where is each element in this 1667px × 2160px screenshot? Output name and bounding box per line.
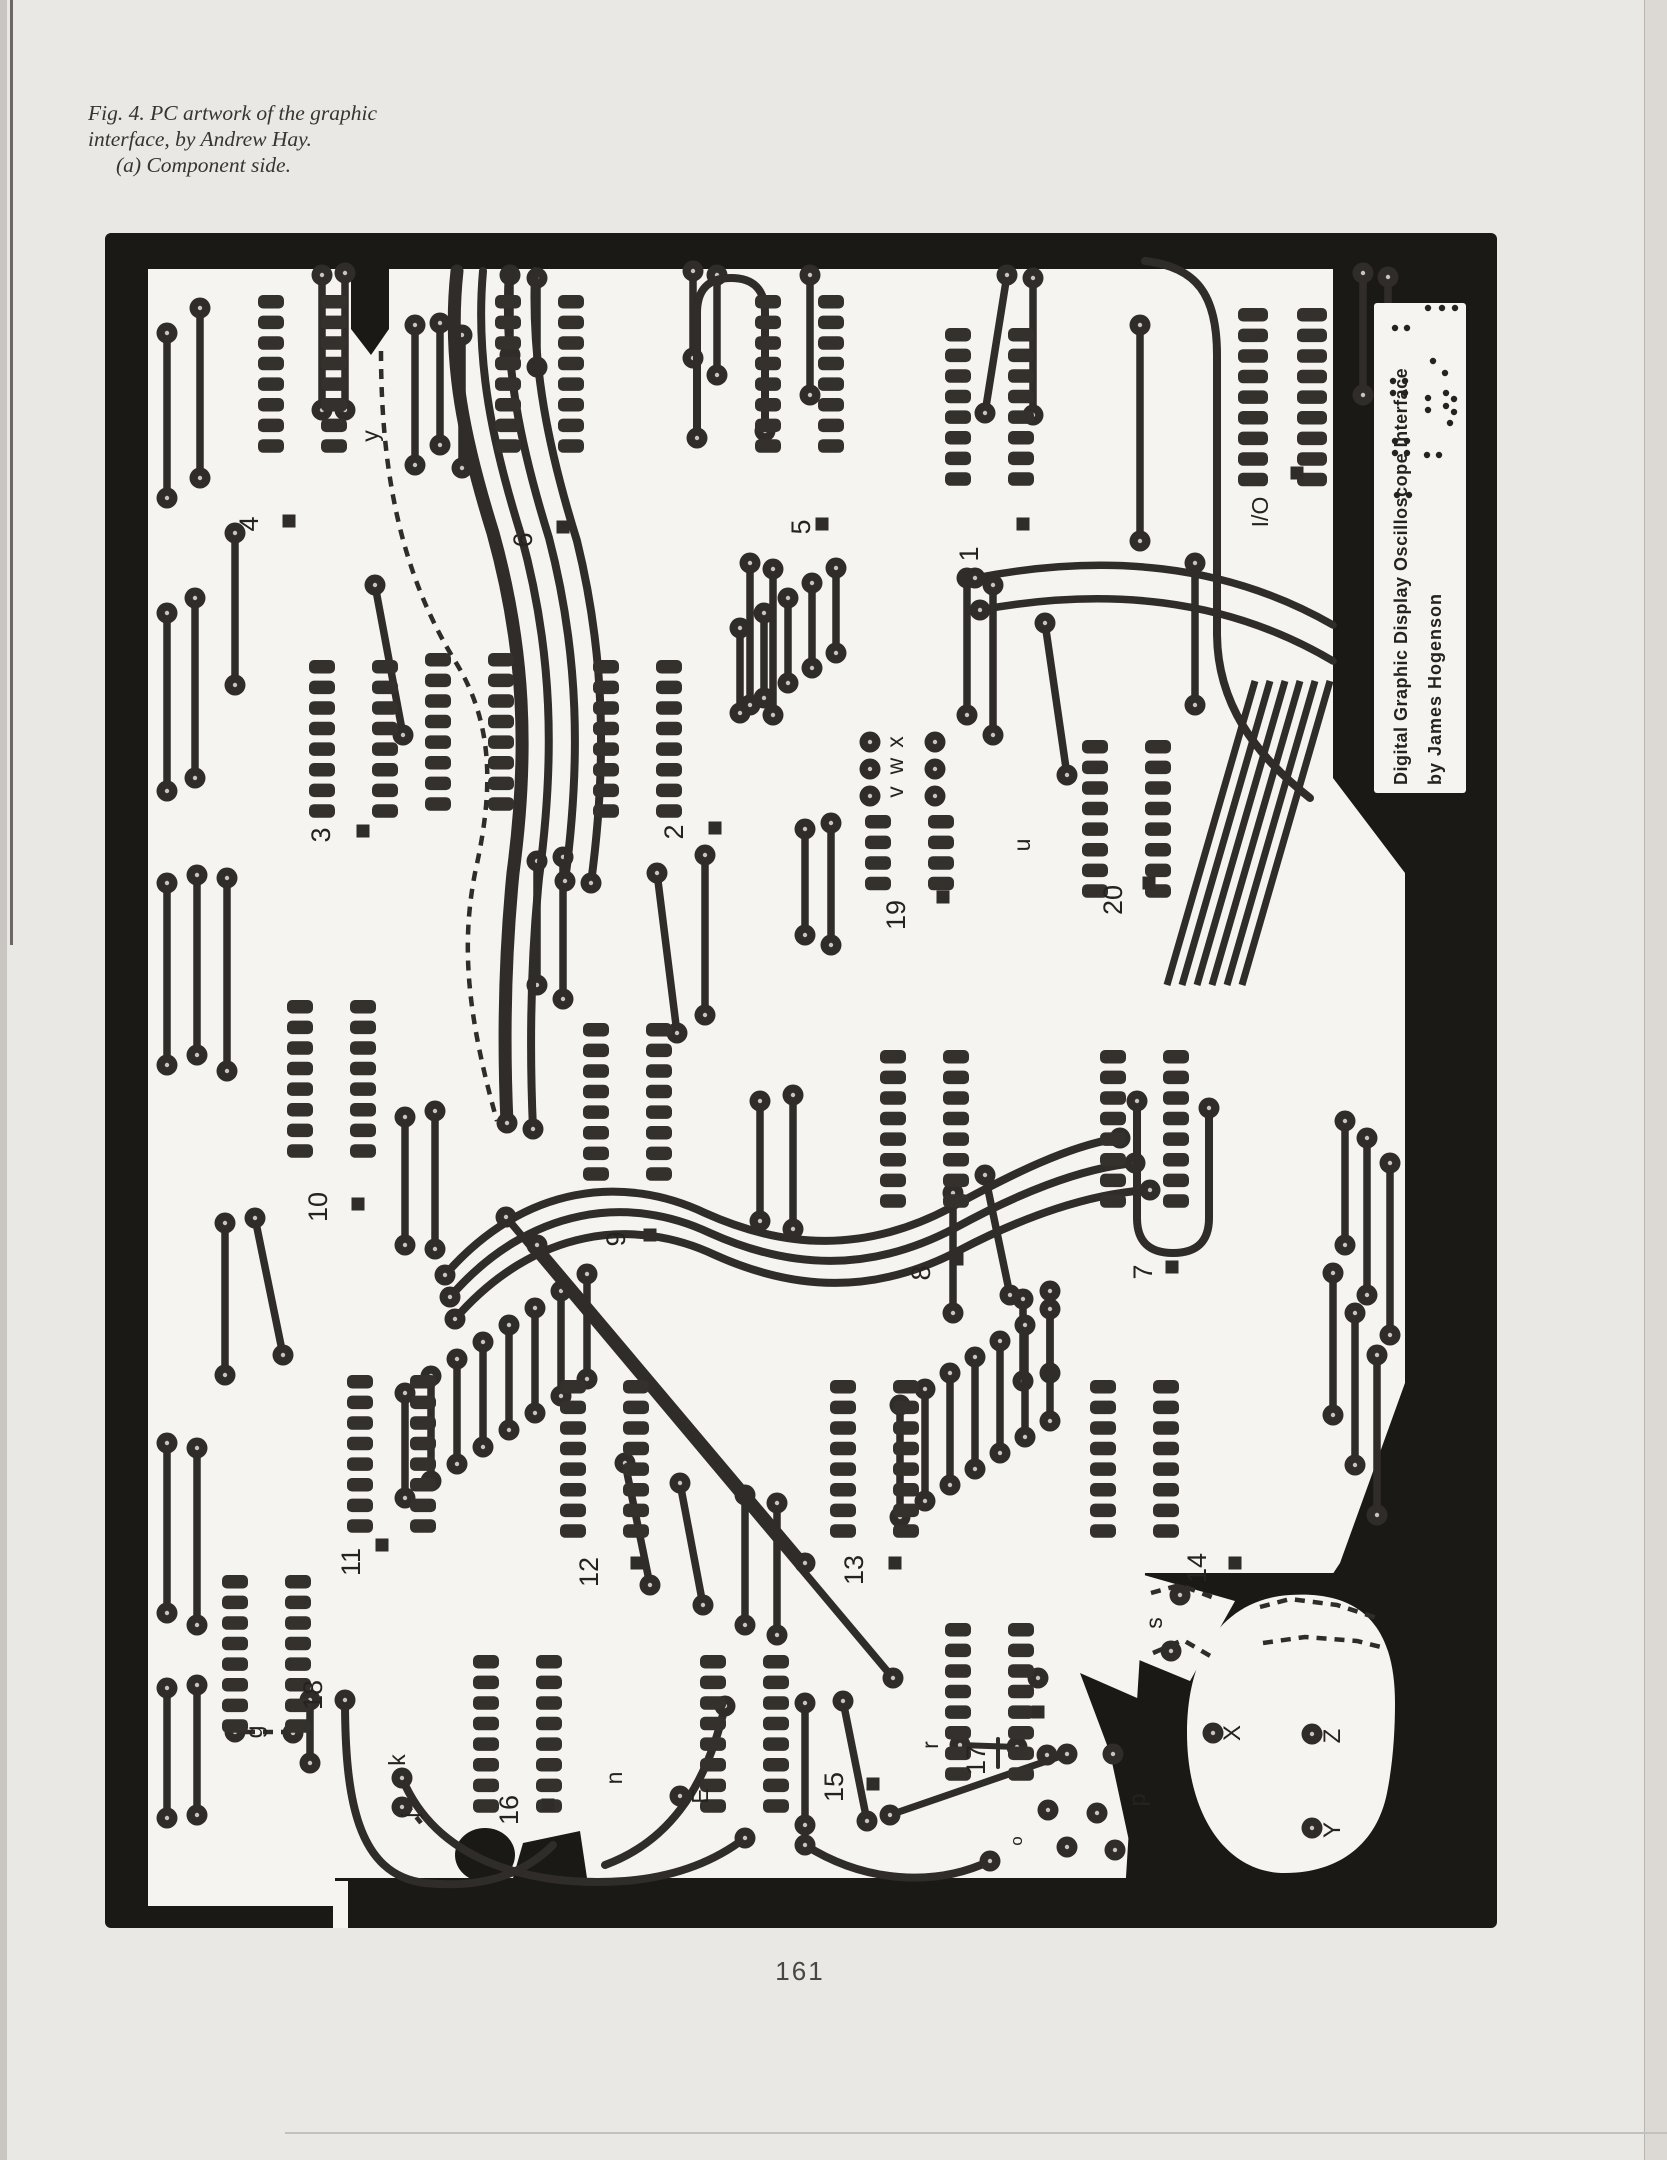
ic-pad <box>425 797 451 811</box>
ic-pad <box>1090 1421 1116 1435</box>
ic-pad <box>495 295 521 309</box>
ic-pad <box>1297 411 1327 425</box>
ic-pad <box>287 1062 313 1076</box>
pad-drill-mark <box>193 596 197 600</box>
pad-drill-mark <box>1065 1752 1069 1756</box>
board-label-4: 4 <box>234 516 264 531</box>
ic-pad <box>1297 329 1327 343</box>
ic-pad <box>1238 390 1268 404</box>
ic-pad <box>1100 1071 1126 1085</box>
ic-pad <box>1100 1132 1126 1146</box>
strip-dot <box>1392 325 1398 331</box>
ic-pad <box>560 1380 586 1394</box>
ic-pad <box>372 784 398 798</box>
ic-pad <box>321 316 347 330</box>
ic-pad <box>700 1717 726 1731</box>
ic-pad <box>880 1071 906 1085</box>
ic-pad <box>495 336 521 350</box>
ic-pad <box>1090 1504 1116 1518</box>
pad-drill-mark <box>743 1836 747 1840</box>
ic-pad <box>536 1737 562 1751</box>
pad-drill-mark <box>1023 1323 1027 1327</box>
ic-pad <box>488 694 514 708</box>
scan-binding-line <box>10 0 13 945</box>
ic-pad <box>1238 452 1268 466</box>
ic-pad <box>763 1676 789 1690</box>
pad-drill-mark <box>585 1272 589 1276</box>
strip-dot <box>1406 492 1412 498</box>
pad-drill-mark <box>983 411 987 415</box>
board-label-16: 16 <box>494 1795 524 1825</box>
ic-pad <box>495 398 521 412</box>
ic-pad <box>1153 1483 1179 1497</box>
strip-dot <box>1390 390 1396 396</box>
ic-pad <box>321 336 347 350</box>
ic-pad <box>1100 1050 1126 1064</box>
pad-drill-mark <box>933 794 937 798</box>
pad-drill-mark <box>1148 1188 1152 1192</box>
ic-pad <box>560 1462 586 1476</box>
ic-pad <box>893 1483 919 1497</box>
strip-dot <box>1451 396 1457 402</box>
ic-pad <box>818 316 844 330</box>
pad-drill-mark <box>1211 1731 1215 1735</box>
ic-pad <box>880 1174 906 1188</box>
pin1-square-pad <box>867 1778 880 1791</box>
ic-pad <box>1008 369 1034 383</box>
ic-pad <box>285 1575 311 1589</box>
pad-drill-mark <box>1113 1848 1117 1852</box>
pad-drill-mark <box>455 1462 459 1466</box>
ic-pad <box>1008 1705 1034 1719</box>
ic-pad <box>943 1132 969 1146</box>
ic-pad <box>763 1799 789 1813</box>
pad-drill-mark <box>803 1843 807 1847</box>
pad-drill-mark <box>373 583 377 587</box>
pad-drill-mark <box>481 1445 485 1449</box>
pad-drill-mark <box>803 1561 807 1565</box>
ic-pad <box>646 1147 672 1161</box>
strip-dot <box>1442 370 1448 376</box>
ic-pad <box>593 742 619 756</box>
ic-pad <box>372 722 398 736</box>
ic-pad <box>656 722 682 736</box>
strip-dot <box>1443 390 1449 396</box>
ic-pad <box>321 398 347 412</box>
ic-pad <box>945 431 971 445</box>
ic-pad <box>285 1719 311 1733</box>
board-label-17: 17 <box>961 1745 991 1775</box>
ic-pad <box>865 815 891 829</box>
ic-pad <box>425 674 451 688</box>
ic-pad <box>347 1416 373 1430</box>
ic-pad <box>1082 864 1108 878</box>
ic-pad <box>1100 1174 1126 1188</box>
pad-drill-mark <box>888 1813 892 1817</box>
pin1-square-pad <box>951 1253 964 1266</box>
ic-pad <box>583 1044 609 1058</box>
pad-drill-mark <box>810 666 814 670</box>
pad-drill-mark <box>738 711 742 715</box>
ic-pad <box>258 357 284 371</box>
ic-pad <box>1100 1153 1126 1167</box>
pad-drill-mark <box>1065 1845 1069 1849</box>
ic-pad <box>1153 1421 1179 1435</box>
ic-pad <box>945 349 971 363</box>
ic-pad <box>583 1147 609 1161</box>
pcb-board-artwork: Digital Graphic Display Oscilloscope Int… <box>105 233 1497 1928</box>
board-label-p: p <box>1124 1794 1150 1807</box>
ic-pad <box>583 1126 609 1140</box>
pad-drill-mark <box>703 1013 707 1017</box>
ic-pad <box>880 1091 906 1105</box>
pad-drill-mark <box>533 1306 537 1310</box>
pad-drill-mark <box>1343 1119 1347 1123</box>
ic-pad <box>222 1678 248 1692</box>
ic-pad <box>425 777 451 791</box>
pad-drill-mark <box>413 323 417 327</box>
board-label-g: g <box>241 1726 267 1739</box>
ic-pad <box>593 681 619 695</box>
pad-drill-mark <box>1375 1353 1379 1357</box>
pad-drill-mark <box>695 436 699 440</box>
strip-dot <box>1402 378 1408 384</box>
ic-pad <box>473 1779 499 1793</box>
ic-pad <box>1145 864 1171 878</box>
ic-pad <box>350 1144 376 1158</box>
pad-drill-mark <box>225 876 229 880</box>
ic-pad <box>372 701 398 715</box>
ic-pad <box>928 856 954 870</box>
pad-drill-mark <box>400 1805 404 1809</box>
pad-drill-mark <box>1193 703 1197 707</box>
ic-pad <box>410 1416 436 1430</box>
pad-drill-mark <box>748 561 752 565</box>
ic-pad <box>488 674 514 688</box>
strip-dot <box>1402 390 1408 396</box>
ic-pad <box>865 856 891 870</box>
ic-pad <box>945 452 971 466</box>
pad-drill-mark <box>973 1467 977 1471</box>
ic-pad <box>258 316 284 330</box>
ic-pad <box>945 369 971 383</box>
ic-pad <box>646 1044 672 1058</box>
pad-drill-mark <box>933 740 937 744</box>
ic-pad <box>1163 1050 1189 1064</box>
board-label-7: 7 <box>1128 1264 1158 1279</box>
ic-pad <box>880 1132 906 1146</box>
board-label-o: o <box>1007 1836 1026 1845</box>
ic-pad <box>1100 1091 1126 1105</box>
ic-pad <box>928 836 954 850</box>
board-label-10: 10 <box>303 1192 333 1222</box>
ic-pad <box>1297 390 1327 404</box>
pad-drill-mark <box>998 1451 1002 1455</box>
pad-drill-mark <box>803 1701 807 1705</box>
board-label-n: n <box>601 1772 627 1785</box>
ic-pad <box>1008 1644 1034 1658</box>
pad-drill-mark <box>1386 275 1390 279</box>
ic-pad <box>830 1380 856 1394</box>
ic-pad <box>309 681 335 695</box>
ic-pad <box>928 877 954 891</box>
pad-drill-mark <box>438 321 442 325</box>
pad-drill-mark <box>868 767 872 771</box>
pin1-square-pad <box>937 891 950 904</box>
ic-pad <box>425 735 451 749</box>
ic-pad <box>285 1616 311 1630</box>
ic-pad <box>425 653 451 667</box>
ic-pad <box>425 715 451 729</box>
ic-pad <box>763 1779 789 1793</box>
ic-pad <box>943 1071 969 1085</box>
pad-drill-mark <box>991 733 995 737</box>
ic-pad <box>700 1758 726 1772</box>
pin1-square-pad <box>816 518 829 531</box>
pad-drill-mark <box>403 1391 407 1395</box>
pad-drill-mark <box>165 1441 169 1445</box>
ic-pad <box>1082 802 1108 816</box>
ic-pad <box>321 419 347 433</box>
ic-pad <box>1008 431 1034 445</box>
board-label-I/O: I/O <box>1247 497 1273 528</box>
board-label-20: 20 <box>1098 885 1128 915</box>
ic-pad <box>763 1696 789 1710</box>
ic-pad <box>1145 822 1171 836</box>
ic-pad <box>536 1655 562 1669</box>
ic-pad <box>880 1153 906 1167</box>
ic-pad <box>350 1041 376 1055</box>
ic-pad <box>560 1442 586 1456</box>
pad-drill-mark <box>1207 1106 1211 1110</box>
ic-pad <box>560 1483 586 1497</box>
ic-pad <box>1238 411 1268 425</box>
pad-drill-mark <box>455 1357 459 1361</box>
board-label-X: X <box>1219 1725 1246 1741</box>
pad-drill-mark <box>948 1483 952 1487</box>
ic-pad <box>1008 1726 1034 1740</box>
pad-drill-mark <box>1048 1307 1052 1311</box>
strip-dot <box>1404 450 1410 456</box>
ic-pad <box>258 295 284 309</box>
pad-drill-mark <box>786 596 790 600</box>
pad-drill-mark <box>1193 561 1197 565</box>
ic-pad <box>763 1758 789 1772</box>
pad-drill-mark <box>1095 1811 1099 1815</box>
pad-drill-mark <box>829 943 833 947</box>
ic-pad <box>945 1685 971 1699</box>
ic-pad <box>285 1637 311 1651</box>
ic-pad <box>880 1112 906 1126</box>
ic-pad <box>646 1023 672 1037</box>
pad-drill-mark <box>810 581 814 585</box>
ic-pad <box>1090 1524 1116 1538</box>
ic-pad <box>1145 740 1171 754</box>
board-label-r: r <box>917 1741 943 1749</box>
ic-pad <box>943 1091 969 1105</box>
ic-pad <box>623 1483 649 1497</box>
pin1-square-pad <box>557 521 570 534</box>
scanned-page: Fig. 4. PC artwork of the graphic interf… <box>0 0 1667 2160</box>
ic-pad <box>287 1082 313 1096</box>
pin1-square-pad <box>709 822 722 835</box>
ic-pad <box>558 295 584 309</box>
ic-pad <box>1297 349 1327 363</box>
scan-edge-band-right <box>1644 0 1667 2160</box>
pad-drill-mark <box>775 1633 779 1637</box>
ic-pad <box>830 1483 856 1497</box>
pad-drill-mark <box>481 1340 485 1344</box>
pad-drill-mark <box>834 566 838 570</box>
ic-pad <box>1163 1153 1189 1167</box>
strip-dot <box>1392 450 1398 456</box>
ic-pad <box>410 1375 436 1389</box>
ic-pad <box>1100 1194 1126 1208</box>
ic-pad <box>593 660 619 674</box>
ic-pad <box>1008 349 1034 363</box>
pad-drill-mark <box>195 1683 199 1687</box>
ic-pad <box>583 1064 609 1078</box>
pad-drill-mark <box>1048 1289 1052 1293</box>
ic-pad <box>347 1437 373 1451</box>
ic-pad <box>287 1041 313 1055</box>
ic-pad <box>700 1737 726 1751</box>
ic-pad <box>593 722 619 736</box>
ic-pad <box>1238 349 1268 363</box>
ic-pad <box>558 398 584 412</box>
ic-pad <box>560 1524 586 1538</box>
pad-drill-mark <box>675 1031 679 1035</box>
pad-drill-mark <box>1005 273 1009 277</box>
ic-pad <box>560 1401 586 1415</box>
pad-drill-mark <box>1138 539 1142 543</box>
ic-pad <box>893 1462 919 1476</box>
pad-drill-mark <box>193 776 197 780</box>
ic-pad <box>623 1380 649 1394</box>
pad-drill-mark <box>585 1377 589 1381</box>
ic-pad <box>830 1462 856 1476</box>
ic-pad <box>410 1499 436 1513</box>
ic-pad <box>350 1021 376 1035</box>
ic-pad <box>1297 370 1327 384</box>
ic-pad <box>1090 1442 1116 1456</box>
pad-drill-mark <box>771 713 775 717</box>
pad-drill-mark <box>786 681 790 685</box>
board-label-x: x <box>882 736 908 748</box>
ic-pad <box>943 1153 969 1167</box>
pad-drill-mark <box>973 1355 977 1359</box>
ic-pad <box>488 756 514 770</box>
pad-drill-mark <box>1365 1136 1369 1140</box>
strip-dot <box>1452 305 1458 311</box>
pad-drill-mark <box>1361 271 1365 275</box>
ic-pad <box>372 742 398 756</box>
board-label-y: y <box>357 430 383 442</box>
pad-drill-mark <box>1331 1413 1335 1417</box>
board-label-13: 13 <box>839 1555 869 1585</box>
ic-pad <box>287 1103 313 1117</box>
pad-drill-mark <box>1048 1419 1052 1423</box>
ic-pad <box>1008 452 1034 466</box>
strip-dot <box>1404 325 1410 331</box>
ic-pad <box>488 777 514 791</box>
ic-pad <box>1082 761 1108 775</box>
ic-pad <box>410 1478 436 1492</box>
ic-pad <box>309 660 335 674</box>
ic-pad <box>945 1726 971 1740</box>
ic-pad <box>495 357 521 371</box>
pad-drill-mark <box>403 1243 407 1247</box>
ic-pad <box>1153 1462 1179 1476</box>
title-strip <box>1374 303 1466 793</box>
pad-drill-mark <box>165 1686 169 1690</box>
strip-dot <box>1443 403 1449 409</box>
pad-drill-mark <box>165 1063 169 1067</box>
ic-pad <box>321 295 347 309</box>
pad-drill-mark <box>715 373 719 377</box>
ic-pad <box>1008 328 1034 342</box>
ic-pad <box>945 1644 971 1658</box>
pad-drill-mark <box>983 1173 987 1177</box>
ic-pad <box>623 1504 649 1518</box>
ic-pad <box>285 1657 311 1671</box>
ic-pad <box>818 377 844 391</box>
pad-drill-mark <box>589 881 593 885</box>
pad-drill-mark <box>923 1387 927 1391</box>
pad-drill-mark <box>1031 276 1035 280</box>
strip-dot <box>1390 378 1396 384</box>
pad-drill-mark <box>504 1215 508 1219</box>
ic-pad <box>1297 432 1327 446</box>
ic-pad <box>818 295 844 309</box>
ic-pad <box>583 1105 609 1119</box>
board-label-14: 14 <box>1182 1553 1212 1583</box>
ic-pad <box>945 410 971 424</box>
pad-drill-mark <box>803 933 807 937</box>
pad-drill-mark <box>1169 1649 1173 1653</box>
ic-pad <box>1008 390 1034 404</box>
ic-pad <box>1145 781 1171 795</box>
strip-dot <box>1439 305 1445 311</box>
strip-dot <box>1425 407 1431 413</box>
board-label-1: 1 <box>954 546 984 561</box>
ic-pad <box>623 1421 649 1435</box>
board-bottom-left-extension <box>148 1878 335 1906</box>
pad-drill-mark <box>1046 1808 1050 1812</box>
ic-pad <box>258 398 284 412</box>
pad-drill-mark <box>531 1127 535 1131</box>
board-label-11: 11 <box>336 1548 366 1576</box>
pad-drill-mark <box>762 611 766 615</box>
ic-pad <box>943 1174 969 1188</box>
ic-pad <box>1163 1132 1189 1146</box>
pin1-square-pad <box>376 1539 389 1552</box>
ic-pad <box>258 377 284 391</box>
ic-pad <box>558 336 584 350</box>
ic-pad <box>495 419 521 433</box>
pad-drill-mark <box>1111 1752 1115 1756</box>
pad-drill-mark <box>1310 1826 1314 1830</box>
ic-pad <box>646 1167 672 1181</box>
ic-pad <box>818 398 844 412</box>
strip-dot <box>1394 492 1400 498</box>
pad-drill-mark <box>655 871 659 875</box>
pad-drill-mark <box>758 1219 762 1223</box>
pad-drill-mark <box>453 1317 457 1321</box>
ic-pad <box>945 1705 971 1719</box>
pad-drill-mark <box>771 567 775 571</box>
pad-drill-mark <box>1343 1243 1347 1247</box>
